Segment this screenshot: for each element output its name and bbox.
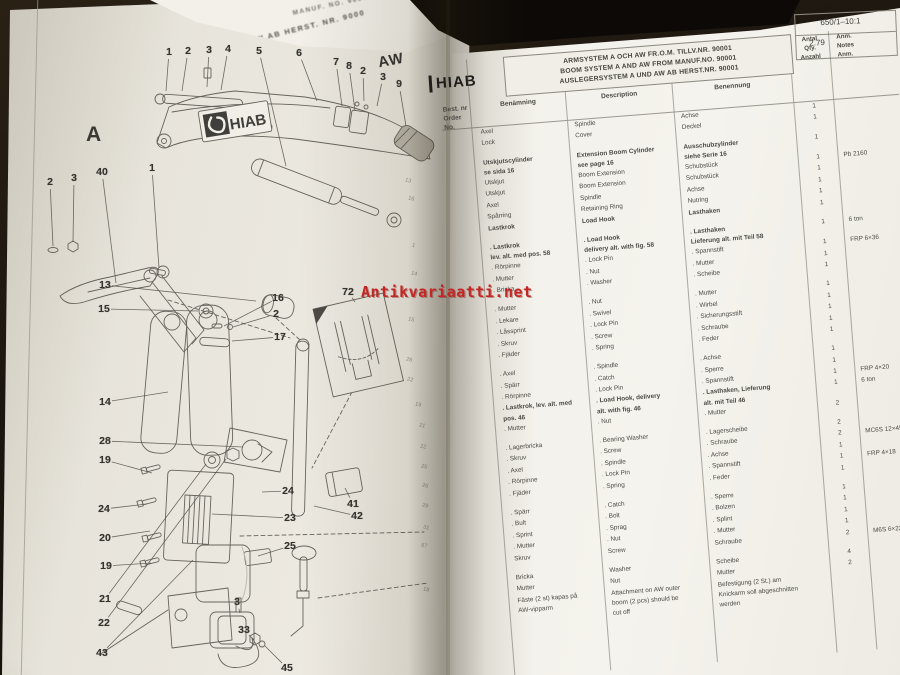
leader-line-3	[73, 185, 74, 242]
leader-line-4	[221, 56, 227, 90]
callout-45: 45	[281, 662, 293, 674]
callout-24: 24	[282, 485, 294, 497]
callout-3: 3	[380, 71, 386, 83]
callout-16: 16	[272, 292, 284, 304]
callout-8: 8	[346, 60, 352, 72]
leader-line-1	[152, 175, 159, 268]
cell-order	[482, 627, 516, 675]
leader-line-1	[166, 59, 168, 91]
leader-line-15	[111, 309, 198, 311]
leader-line-43	[107, 560, 193, 648]
callout-20: 20	[99, 532, 111, 544]
cell-note	[873, 593, 900, 649]
callout-2: 2	[185, 45, 191, 57]
table-body: AxelSpindleAchse1LockCoverDeckel1Utskjut…	[442, 95, 900, 675]
column-header-qty: Antal Qty. Anzahl	[789, 34, 831, 64]
callout-3: 3	[71, 172, 77, 184]
leader-line-7	[337, 69, 342, 106]
callout-42: 42	[351, 510, 363, 522]
book-photo: MANUF. NO. 9000 AW AB HERST. NR. 9000 HI…	[0, 0, 900, 675]
callout-19: 19	[99, 454, 111, 466]
callout-14: 14	[99, 396, 111, 408]
cell-de	[714, 602, 838, 662]
leader-line-41	[345, 488, 350, 498]
leader-line-28	[112, 441, 243, 447]
leader-line-6	[301, 60, 317, 101]
callout-41: 41	[347, 498, 359, 510]
exploded-parts-diagram: HIAB	[0, 0, 450, 675]
leader-line-13	[112, 286, 256, 301]
callout-25: 25	[284, 540, 296, 552]
callout-13: 13	[99, 279, 111, 291]
callout-21: 21	[99, 593, 111, 605]
leader-line-3	[207, 57, 209, 87]
leader-line-9	[400, 91, 406, 126]
cell-sv	[512, 619, 612, 675]
leader-line-2	[182, 58, 187, 91]
cell-note	[871, 563, 900, 598]
callout-1: 1	[149, 162, 155, 174]
cell-qty	[834, 599, 878, 653]
leader-line-23	[212, 514, 283, 518]
callout-6: 6	[296, 47, 302, 59]
leader-line-42	[314, 506, 350, 514]
callout-5: 5	[256, 45, 262, 57]
callout-22: 22	[98, 617, 110, 629]
callout-2: 2	[47, 176, 53, 188]
cell-order	[445, 159, 476, 182]
callout-17: 17	[274, 331, 286, 343]
leader-line-21	[109, 464, 206, 593]
callout-33: 33	[238, 624, 250, 636]
callout-9: 9	[396, 78, 402, 90]
watermark-text: Antikvariaatti.net	[361, 283, 533, 301]
leader-line-2	[363, 78, 364, 101]
column-header-notes: Anm. Notes Anm.	[836, 29, 898, 61]
callout-3: 3	[234, 596, 240, 608]
section-label-a: A	[86, 123, 101, 147]
cell-order	[479, 597, 511, 630]
leader-line-2	[50, 189, 53, 246]
callout-72: 72	[342, 286, 354, 298]
cell-order	[452, 244, 483, 267]
leader-line-17	[232, 338, 273, 341]
callout-24: 24	[98, 503, 110, 515]
leader-line-24	[262, 491, 281, 492]
leader-line-8	[350, 73, 355, 111]
cell-order	[464, 405, 495, 428]
leader-line-3	[377, 84, 382, 106]
callout-2: 2	[273, 308, 279, 320]
callout-23: 23	[284, 512, 296, 524]
callout-43: 43	[96, 647, 108, 659]
cell-qty	[831, 568, 873, 601]
parts-table: Best. nr Order No. Best. Nr Benämning De…	[437, 26, 900, 675]
leader-line-45	[265, 646, 282, 663]
callout-40: 40	[96, 166, 108, 178]
leader-line-14	[112, 392, 168, 401]
callout-7: 7	[333, 56, 339, 68]
callout-15: 15	[98, 303, 110, 315]
callout-19: 19	[100, 560, 112, 572]
callout-2: 2	[360, 65, 366, 77]
callout-28: 28	[99, 435, 111, 447]
callout-1: 1	[166, 46, 172, 58]
callout-3: 3	[206, 44, 212, 56]
callout-4: 4	[225, 43, 231, 55]
cell-en	[607, 611, 718, 670]
leader-line-40	[103, 179, 116, 283]
